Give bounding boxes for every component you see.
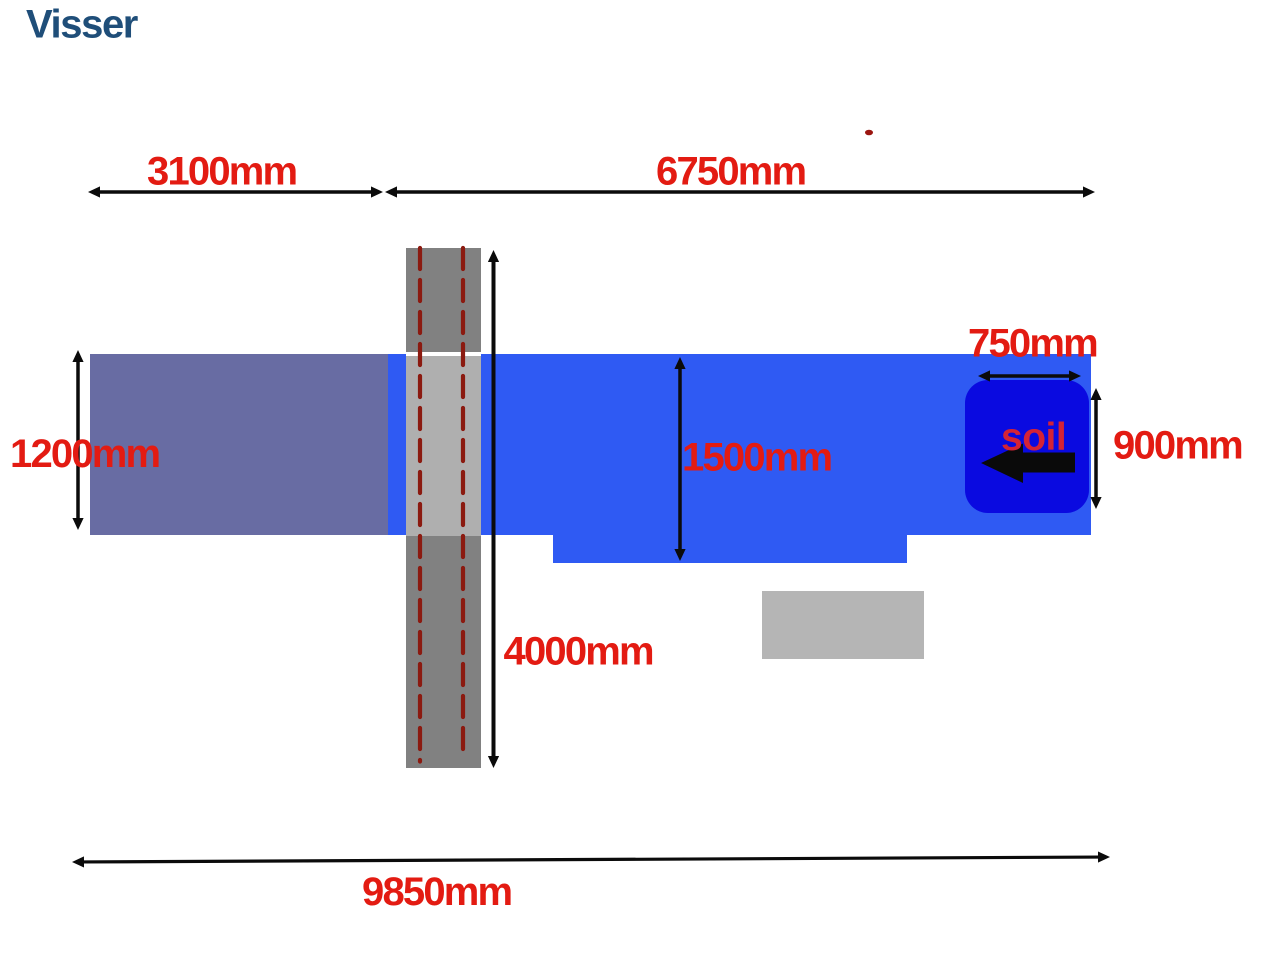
svg-text:900mm: 900mm (1113, 424, 1242, 468)
svg-text:1200mm: 1200mm (10, 432, 160, 476)
svg-text:1500mm: 1500mm (682, 436, 832, 480)
svg-text:4000mm: 4000mm (504, 630, 654, 674)
svg-text:soil: soil (1001, 416, 1066, 459)
svg-text:9850mm: 9850mm (362, 870, 512, 914)
svg-text:Visser: Visser (26, 3, 138, 47)
svg-text:6750mm: 6750mm (656, 150, 806, 194)
svg-text:750mm: 750mm (968, 322, 1097, 366)
svg-text:3100mm: 3100mm (147, 150, 297, 194)
